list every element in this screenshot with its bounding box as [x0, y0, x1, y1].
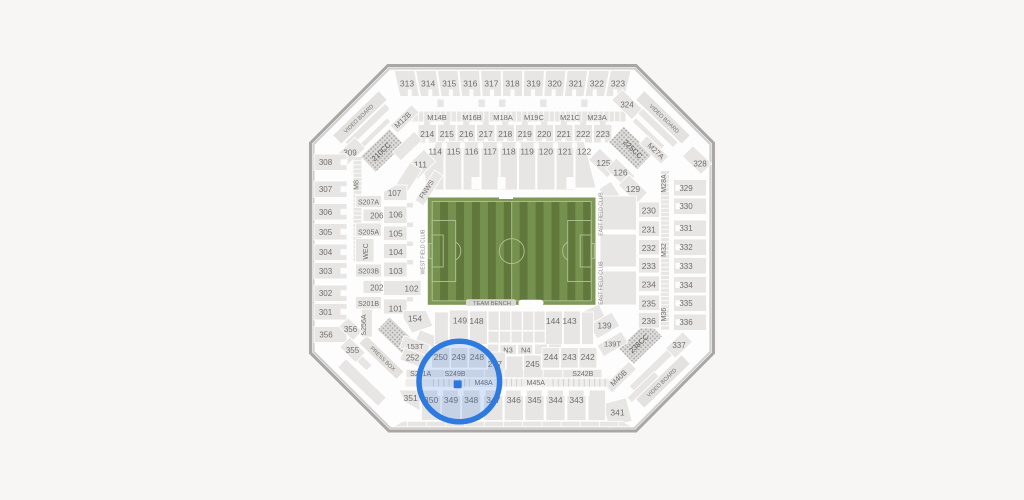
- svg-text:320: 320: [548, 79, 562, 89]
- svg-text:105: 105: [389, 228, 403, 238]
- svg-text:S201B: S201B: [358, 301, 379, 308]
- svg-text:139: 139: [597, 321, 611, 331]
- svg-text:356: 356: [319, 331, 333, 340]
- svg-text:202: 202: [370, 283, 384, 292]
- svg-text:308: 308: [319, 158, 333, 167]
- svg-text:245: 245: [526, 359, 540, 369]
- svg-text:102: 102: [404, 284, 418, 294]
- svg-text:321: 321: [569, 79, 583, 89]
- svg-text:221: 221: [557, 129, 571, 139]
- svg-text:323: 323: [611, 79, 625, 89]
- svg-text:M36: M36: [661, 308, 668, 322]
- svg-text:322: 322: [590, 79, 604, 89]
- svg-text:WEC: WEC: [363, 243, 370, 259]
- svg-text:121: 121: [558, 147, 572, 157]
- svg-text:234: 234: [642, 279, 656, 289]
- svg-text:EAST FIELD CLUB: EAST FIELD CLUB: [599, 192, 605, 236]
- svg-text:307: 307: [319, 185, 333, 194]
- svg-text:222: 222: [576, 129, 590, 139]
- svg-text:215: 215: [440, 129, 454, 139]
- svg-text:330: 330: [679, 202, 693, 211]
- svg-text:143: 143: [562, 316, 576, 326]
- svg-text:303: 303: [319, 267, 333, 276]
- svg-text:118: 118: [502, 147, 516, 157]
- svg-text:216: 216: [459, 129, 473, 139]
- svg-text:107: 107: [388, 189, 402, 198]
- svg-text:243: 243: [562, 352, 576, 362]
- svg-text:220: 220: [537, 129, 551, 139]
- svg-text:M18A: M18A: [493, 113, 513, 122]
- svg-text:355: 355: [346, 346, 360, 355]
- svg-text:M32: M32: [661, 243, 668, 257]
- svg-text:214: 214: [420, 129, 434, 139]
- svg-text:242: 242: [581, 352, 595, 362]
- svg-text:319: 319: [527, 79, 541, 89]
- svg-text:217: 217: [479, 129, 493, 139]
- svg-text:305: 305: [319, 228, 333, 237]
- svg-text:332: 332: [679, 243, 693, 252]
- svg-text:317: 317: [484, 79, 498, 89]
- svg-text:S207A: S207A: [358, 199, 379, 206]
- svg-text:122: 122: [577, 147, 591, 157]
- svg-text:313: 313: [400, 79, 414, 89]
- svg-text:301: 301: [319, 308, 333, 317]
- svg-text:343: 343: [569, 395, 583, 405]
- svg-text:M45A: M45A: [527, 380, 546, 387]
- svg-text:S256A: S256A: [361, 314, 368, 335]
- svg-text:218: 218: [498, 129, 512, 139]
- svg-text:244: 244: [544, 352, 558, 362]
- svg-text:139T: 139T: [604, 340, 622, 349]
- svg-text:EAST FIELD CLUB: EAST FIELD CLUB: [599, 261, 605, 305]
- svg-text:356: 356: [344, 325, 358, 334]
- svg-text:120: 120: [539, 147, 553, 157]
- svg-text:M14B: M14B: [427, 113, 447, 122]
- svg-text:223: 223: [596, 129, 610, 139]
- svg-text:252: 252: [406, 353, 420, 362]
- svg-text:M19C: M19C: [524, 113, 545, 122]
- svg-text:316: 316: [463, 79, 477, 89]
- svg-text:346: 346: [507, 395, 521, 405]
- svg-text:144: 144: [546, 316, 560, 326]
- svg-text:328: 328: [693, 160, 707, 169]
- svg-text:S242B: S242B: [572, 371, 593, 378]
- svg-text:206: 206: [370, 211, 384, 220]
- svg-text:149: 149: [453, 316, 467, 326]
- svg-text:129: 129: [626, 184, 640, 194]
- svg-text:315: 315: [442, 79, 456, 89]
- svg-text:314: 314: [421, 79, 435, 89]
- svg-text:304: 304: [319, 248, 333, 257]
- svg-text:306: 306: [319, 208, 333, 217]
- svg-text:235: 235: [642, 298, 656, 308]
- svg-text:336: 336: [679, 318, 693, 327]
- svg-text:351: 351: [404, 393, 418, 403]
- svg-text:104: 104: [389, 247, 403, 257]
- svg-text:119: 119: [520, 147, 534, 157]
- svg-text:WEST FIELD CLUB: WEST FIELD CLUB: [421, 229, 427, 274]
- svg-text:114: 114: [428, 147, 442, 157]
- svg-text:236: 236: [642, 316, 656, 326]
- svg-text:329: 329: [679, 184, 693, 193]
- svg-text:154: 154: [408, 314, 422, 324]
- svg-text:344: 344: [548, 395, 562, 405]
- svg-text:219: 219: [518, 129, 532, 139]
- svg-text:116: 116: [465, 147, 479, 157]
- svg-text:334: 334: [679, 281, 693, 290]
- svg-text:103: 103: [389, 266, 403, 276]
- svg-text:337: 337: [672, 341, 686, 350]
- svg-text:148: 148: [469, 316, 483, 326]
- svg-text:M16B: M16B: [462, 113, 482, 122]
- svg-text:126: 126: [613, 168, 627, 178]
- svg-text:230: 230: [642, 205, 656, 215]
- svg-text:318: 318: [505, 79, 519, 89]
- svg-text:S203B: S203B: [358, 269, 379, 276]
- svg-text:M28A: M28A: [661, 174, 668, 193]
- svg-text:335: 335: [679, 299, 693, 308]
- svg-text:S205A: S205A: [358, 229, 379, 236]
- svg-text:232: 232: [642, 243, 656, 253]
- svg-text:101: 101: [389, 303, 403, 313]
- svg-text:333: 333: [679, 262, 693, 271]
- svg-text:M21C: M21C: [560, 113, 581, 122]
- svg-text:M8: M8: [354, 180, 361, 190]
- svg-text:231: 231: [642, 224, 656, 234]
- svg-text:324: 324: [620, 100, 634, 109]
- svg-text:N4: N4: [521, 346, 531, 355]
- svg-text:331: 331: [679, 224, 693, 233]
- svg-text:345: 345: [527, 395, 541, 405]
- svg-text:341: 341: [610, 408, 624, 418]
- svg-text:302: 302: [319, 289, 333, 298]
- svg-text:M23A: M23A: [587, 113, 607, 122]
- svg-text:117: 117: [483, 147, 497, 157]
- svg-text:TEAM BENCH: TEAM BENCH: [473, 301, 511, 307]
- svg-text:115: 115: [447, 147, 461, 157]
- svg-text:106: 106: [389, 209, 403, 219]
- svg-text:233: 233: [642, 261, 656, 271]
